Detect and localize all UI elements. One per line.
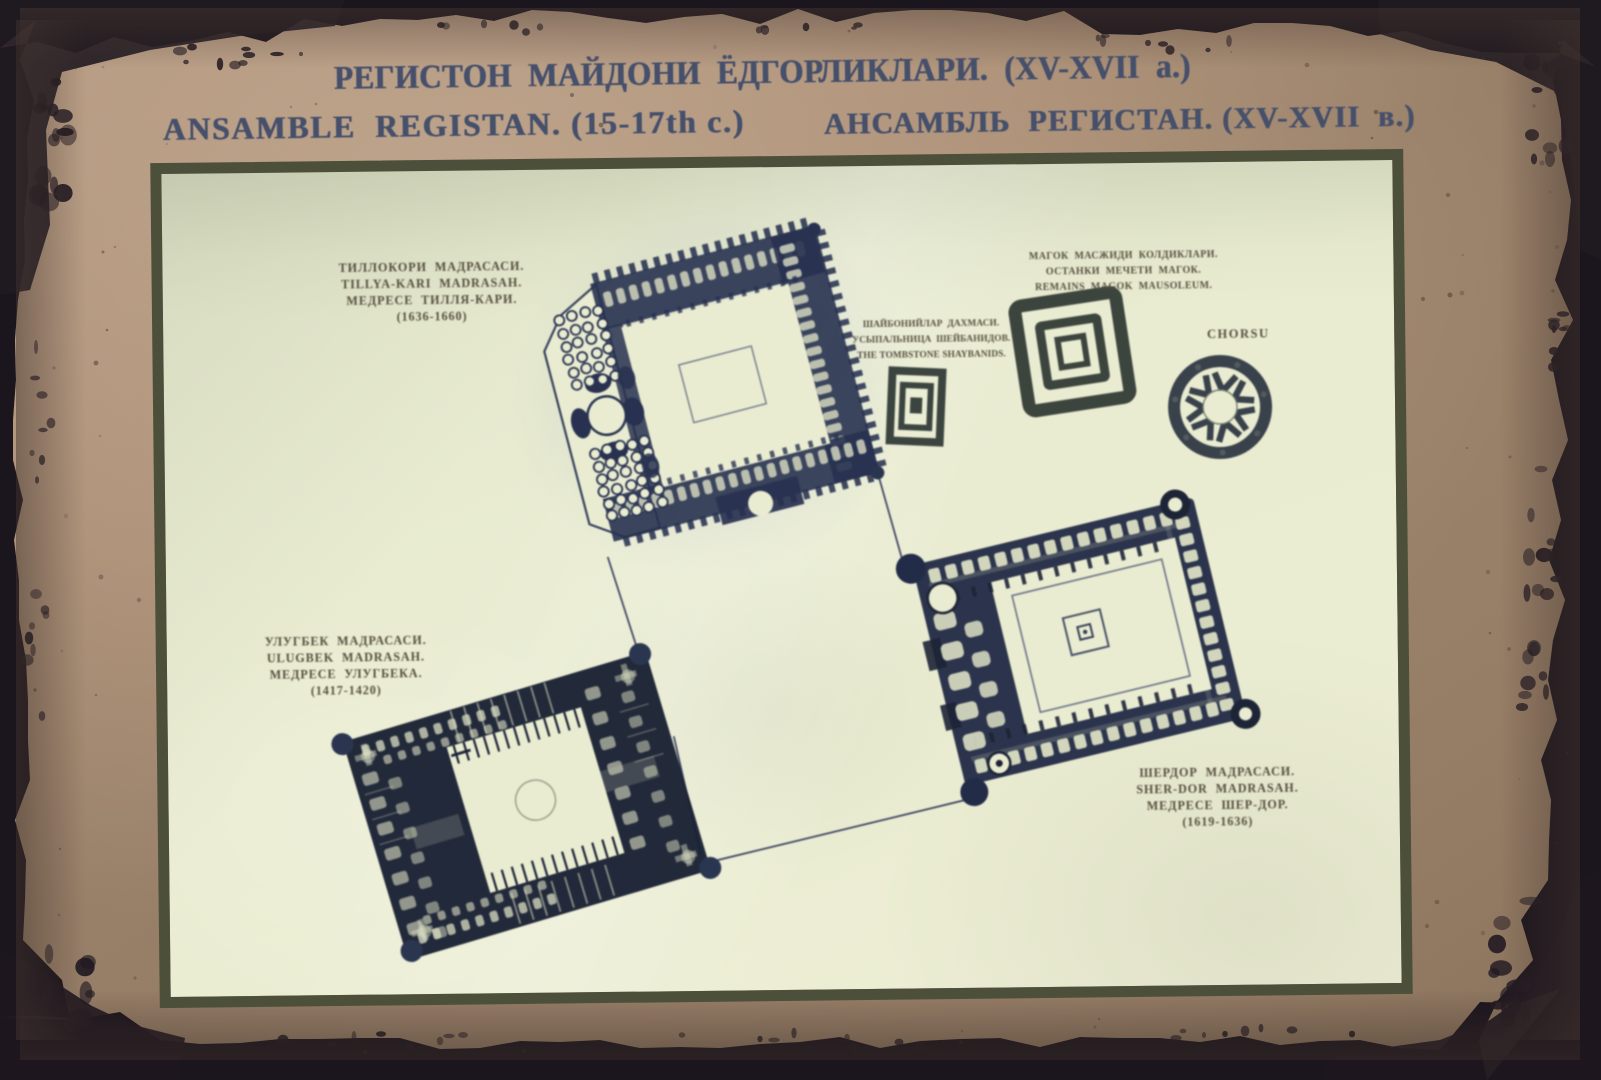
svg-text:(1619-1636): (1619-1636) bbox=[1182, 814, 1253, 829]
svg-text:ULUGBEK MADRASAH.: ULUGBEK MADRASAH. bbox=[267, 650, 425, 666]
svg-text:УЛУГБЕК МАДРАСАСИ.: УЛУГБЕК МАДРАСАСИ. bbox=[265, 633, 427, 649]
svg-text:МЕДРЕСЕ УЛУГБЕКА.: МЕДРЕСЕ УЛУГБЕКА. bbox=[270, 666, 423, 682]
svg-text:TILLYA-KARI MADRASAH.: TILLYA-KARI MADRASAH. bbox=[341, 275, 522, 291]
svg-text:МЕДРЕСЕ ТИЛЛЯ-КАРИ.: МЕДРЕСЕ ТИЛЛЯ-КАРИ. bbox=[346, 292, 517, 308]
svg-text:ОСТАНКИ МЕЧЕТИ МАГОК.: ОСТАНКИ МЕЧЕТИ МАГОК. bbox=[1046, 265, 1202, 278]
svg-text:МЕДРЕСЕ ШЕР-ДОР.: МЕДРЕСЕ ШЕР-ДОР. bbox=[1147, 797, 1289, 813]
svg-text:(1636-1660): (1636-1660) bbox=[397, 309, 468, 324]
svg-text:ШЕРДОР МАДРАСАСИ.: ШЕРДОР МАДРАСАСИ. bbox=[1139, 764, 1295, 780]
svg-text:THE TOMBSTONE SHAYBANIDS.: THE TOMBSTONE SHAYBANIDS. bbox=[857, 349, 1006, 361]
svg-text:ТИЛЛОКОРИ МАДРАСАСИ.: ТИЛЛОКОРИ МАДРАСАСИ. bbox=[339, 259, 525, 275]
svg-text:REMAINS MAGOK MAUSOLEUM.: REMAINS MAGOK MAUSOLEUM. bbox=[1035, 280, 1213, 293]
svg-text:SHER-DOR MADRASAH.: SHER-DOR MADRASAH. bbox=[1136, 781, 1298, 797]
svg-text:МАГОК МАСЖИДИ КОЛДИКЛАРИ.: МАГОК МАСЖИДИ КОЛДИКЛАРИ. bbox=[1029, 249, 1218, 262]
svg-text:CHORSU: CHORSU bbox=[1207, 326, 1270, 341]
svg-text:(1417-1420): (1417-1420) bbox=[311, 683, 382, 698]
